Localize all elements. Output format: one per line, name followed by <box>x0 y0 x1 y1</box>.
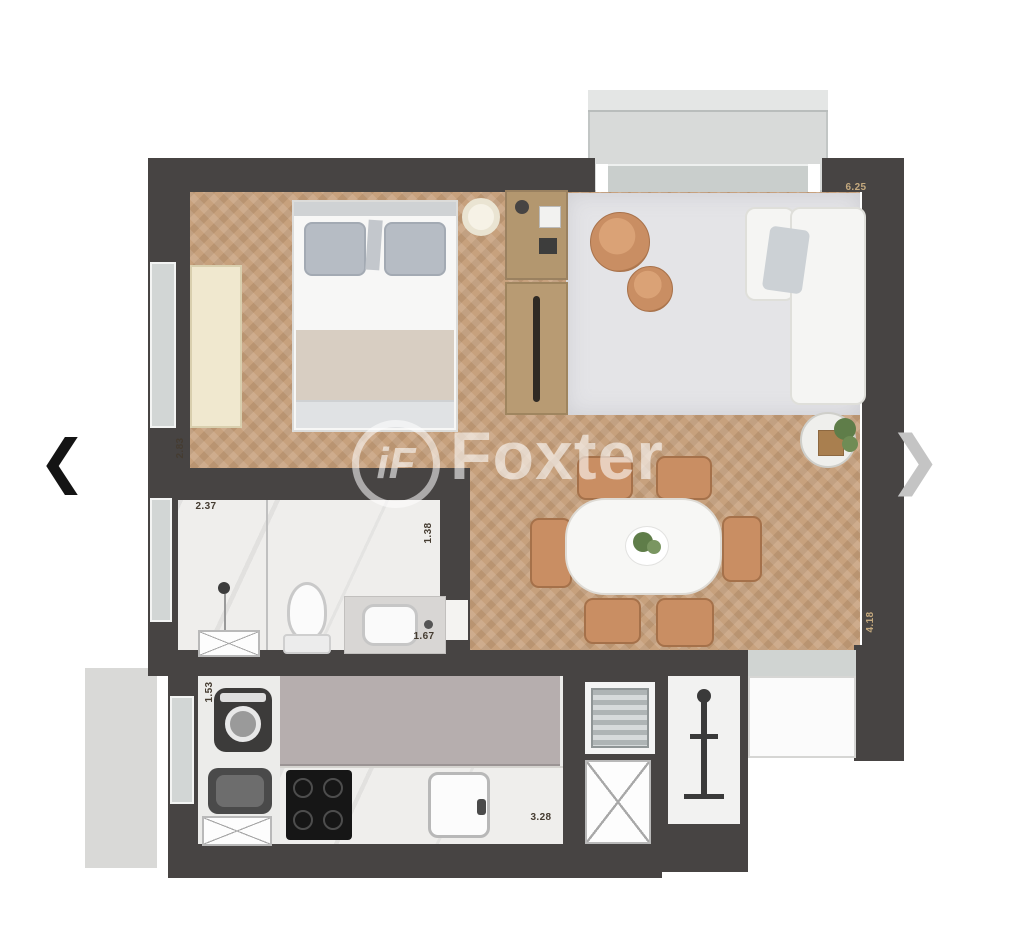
burner <box>323 778 343 798</box>
corner-wall-block <box>854 645 904 761</box>
dimension-label: 1.53 <box>204 672 216 712</box>
vanity-faucet <box>424 620 433 629</box>
shower-drain <box>218 582 230 594</box>
desk-chair <box>515 200 529 214</box>
ac-condenser-unit <box>591 688 649 748</box>
burner <box>293 810 313 830</box>
entry-landing <box>748 676 856 758</box>
shaft-box <box>585 760 651 844</box>
cooktop <box>286 770 352 840</box>
door-jamb <box>596 164 608 192</box>
bed-blanket <box>296 330 454 402</box>
dimension-label: 2.83 <box>175 428 187 468</box>
dining-chair <box>722 516 762 582</box>
utility-alcove <box>668 676 740 824</box>
shower-column-arm <box>690 734 718 739</box>
shaft-box <box>198 630 260 657</box>
sink-faucet <box>477 799 486 815</box>
shower-column-bar <box>701 698 707 796</box>
desk-unit <box>505 190 568 280</box>
previous-image-button[interactable]: ❮ <box>38 432 87 490</box>
toilet-bowl <box>287 582 327 640</box>
sideboard <box>505 282 568 415</box>
washer-lid-band <box>220 693 266 702</box>
door-jamb <box>808 164 820 192</box>
burner <box>323 810 343 830</box>
dimension-label: 2.37 <box>184 501 228 513</box>
bed-pillow <box>384 222 446 276</box>
balcony-railing <box>588 90 828 112</box>
dimension-label: 3.28 <box>518 812 564 824</box>
ac-panel <box>585 682 655 754</box>
kitchen-sink <box>428 772 490 838</box>
desk-item <box>539 238 557 254</box>
laundry-tub-basin <box>216 775 264 807</box>
next-image-button[interactable]: ❯ <box>888 428 942 492</box>
brand-wordmark: Foxter <box>450 417 664 495</box>
table-centerpiece-plant <box>647 540 661 554</box>
dimension-label: 1.67 <box>402 631 446 643</box>
toilet-tank <box>283 634 331 654</box>
desk-item <box>539 206 561 228</box>
kitchen-island <box>280 676 560 766</box>
shaft-box <box>202 816 272 846</box>
top-wall-left <box>148 158 595 192</box>
bed-runner <box>365 220 382 271</box>
washer-drum <box>225 706 261 742</box>
laundry-tub <box>208 768 272 814</box>
brand-logo-icon: iF <box>352 420 440 508</box>
floor-plan-image: 6.25 2.83 2.37 1.38 1.67 1.53 3.28 4.18 … <box>0 0 1024 925</box>
entry-threshold <box>748 650 856 676</box>
shower-column-base <box>684 794 724 799</box>
floorplan-carousel-viewer: 6.25 2.83 2.37 1.38 1.67 1.53 3.28 4.18 … <box>0 0 1024 925</box>
bedroom-window <box>150 262 176 428</box>
washing-machine <box>214 688 272 752</box>
bed-headboard <box>294 202 456 216</box>
hallway-slab <box>85 668 161 868</box>
sideboard-groove <box>533 296 540 402</box>
pouf-large <box>590 212 650 272</box>
burner <box>293 778 313 798</box>
dimension-label: 6.25 <box>834 182 878 194</box>
plant-leaves <box>842 436 858 452</box>
wall-decor-circle <box>462 198 500 236</box>
dining-chair <box>584 598 641 644</box>
bed-pillow <box>304 222 366 276</box>
bathroom-window <box>150 498 172 622</box>
balcony-sliding-door <box>596 164 820 192</box>
dimension-label: 1.38 <box>423 513 435 553</box>
brand-monogram: iF <box>376 439 415 489</box>
watermark: iF Foxter <box>348 415 678 515</box>
dining-chair <box>656 598 714 647</box>
wardrobe <box>190 265 242 428</box>
double-bed <box>292 200 458 432</box>
pouf-small <box>627 266 673 312</box>
shower-partition <box>266 500 268 650</box>
kitchen-window <box>170 696 194 804</box>
dimension-label: 4.18 <box>865 602 877 642</box>
